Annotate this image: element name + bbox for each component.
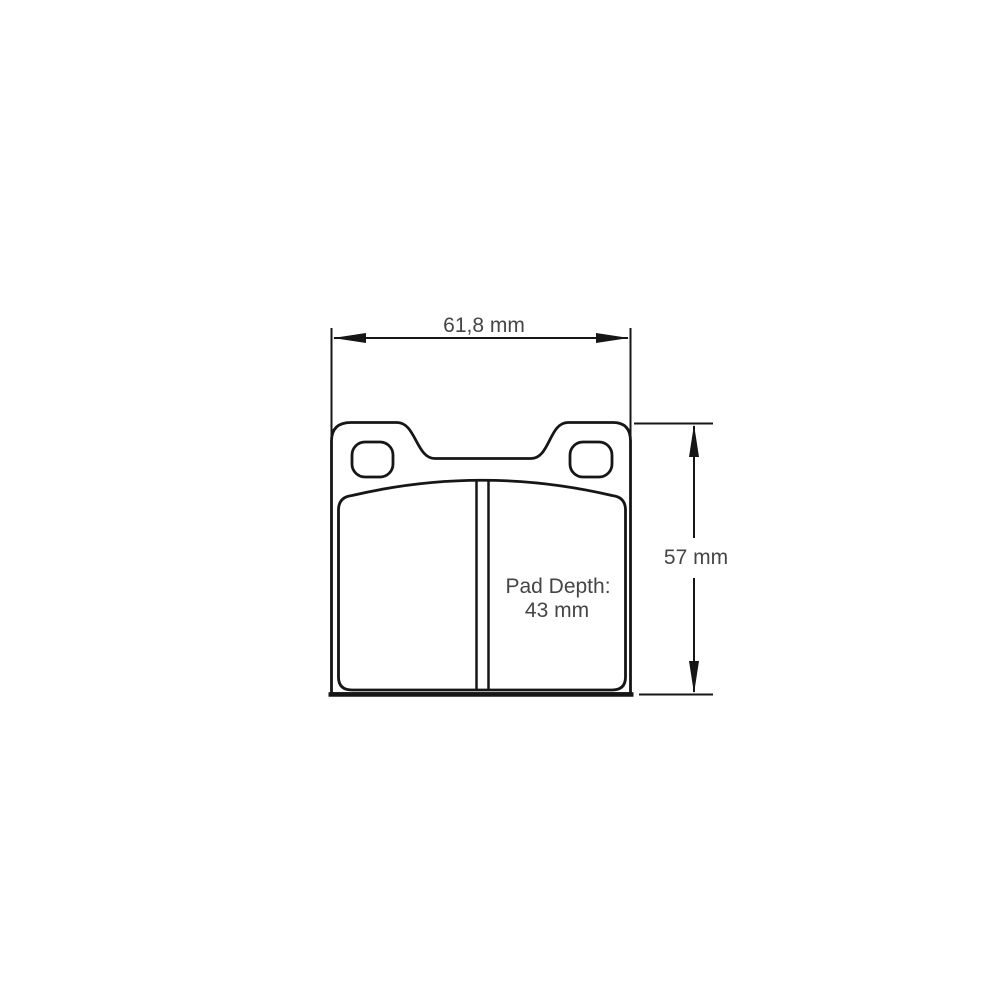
arrow-up-icon xyxy=(689,425,699,458)
brake-pad-drawing: Pad Depth: 43 mm xyxy=(329,423,634,695)
width-dimension: 61,8 mm xyxy=(332,314,631,436)
diagram-canvas: 61,8 mm 57 mm xyxy=(0,0,1000,1000)
brake-pad-technical-drawing: 61,8 mm 57 mm xyxy=(0,0,1000,1000)
height-dimension-label: 57 mm xyxy=(664,546,728,569)
pad-depth-label-line1: Pad Depth: xyxy=(505,575,610,598)
pad-depth-label-line2: 43 mm xyxy=(525,599,589,622)
arrow-left-icon xyxy=(333,333,366,343)
lug-hole-left xyxy=(352,442,393,477)
height-dimension: 57 mm xyxy=(634,424,728,695)
arrow-right-icon xyxy=(596,333,629,343)
width-dimension-label: 61,8 mm xyxy=(443,314,525,337)
lug-hole-right xyxy=(570,442,612,477)
arrow-down-icon xyxy=(689,661,699,694)
